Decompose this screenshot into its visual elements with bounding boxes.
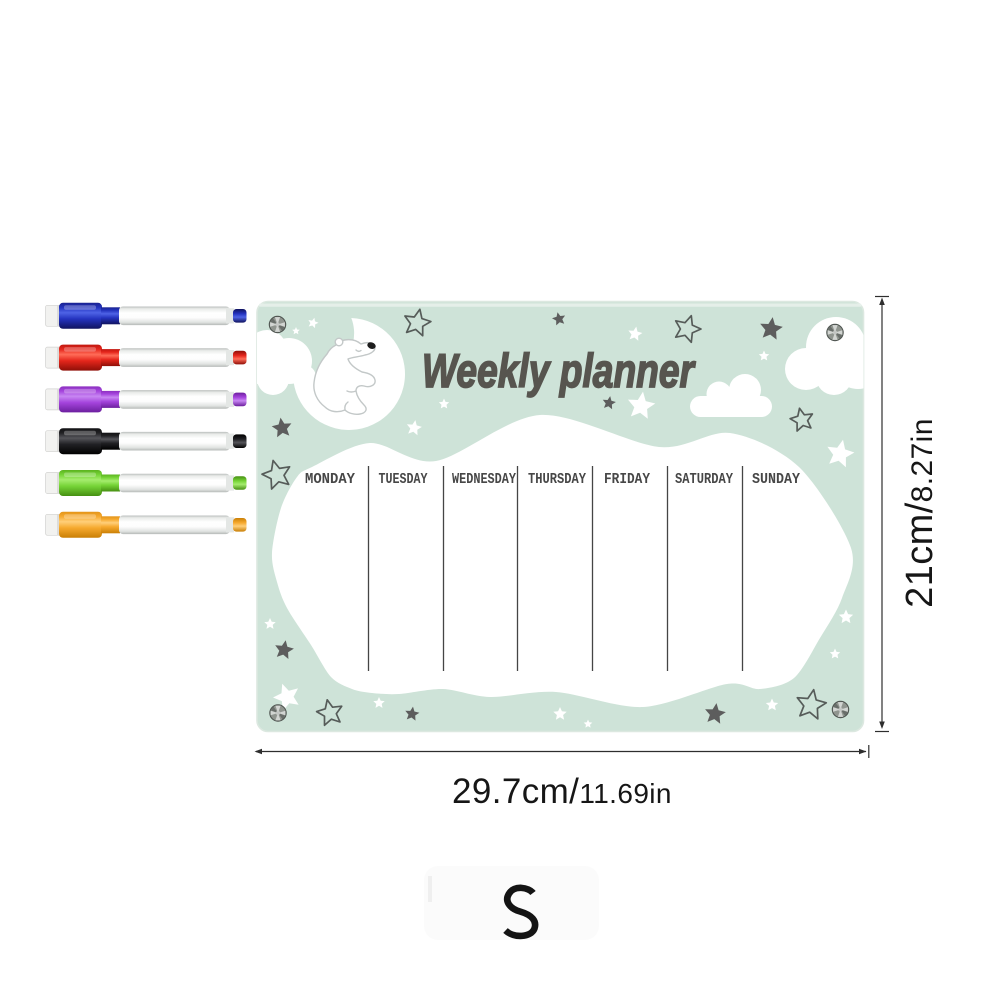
svg-text:21cm/8.27in: 21cm/8.27in [899,418,941,608]
svg-text:SATURDAY: SATURDAY [675,471,733,488]
svg-text:THURSDAY: THURSDAY [528,471,586,488]
svg-text:SUNDAY: SUNDAY [752,471,800,488]
svg-text:Weekly planner: Weekly planner [422,344,696,397]
svg-text:FRIDAY: FRIDAY [604,471,650,488]
svg-text:MONDAY: MONDAY [305,471,355,488]
svg-text:29.7cm/11.69in: 29.7cm/11.69in [452,772,672,811]
svg-text:WEDNESDAY: WEDNESDAY [452,471,516,488]
svg-text:TUESDAY: TUESDAY [379,471,428,488]
